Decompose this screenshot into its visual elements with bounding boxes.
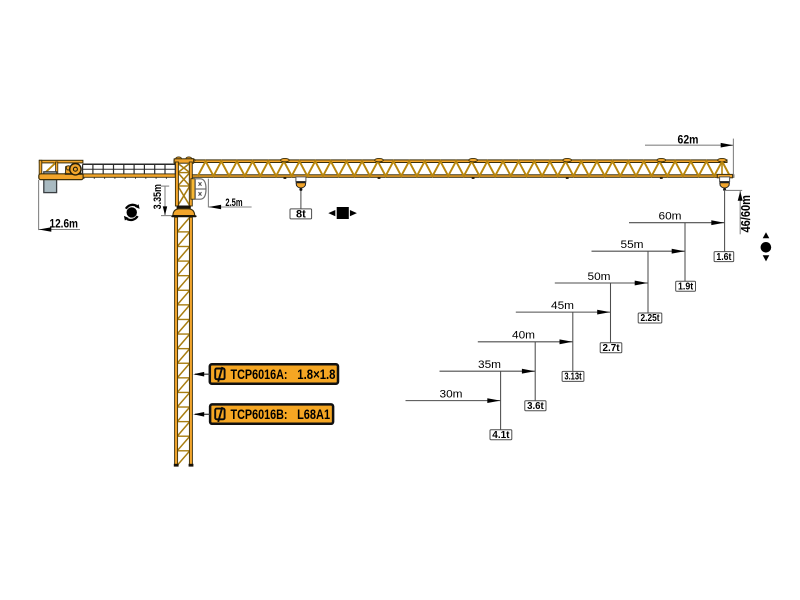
svg-text:1.6t: 1.6t: [716, 252, 731, 263]
svg-text:2.25t: 2.25t: [641, 313, 660, 324]
svg-text:8t: 8t: [296, 208, 306, 220]
svg-text:46/60m: 46/60m: [739, 195, 753, 233]
svg-text:60m: 60m: [659, 211, 682, 223]
svg-text:50m: 50m: [588, 271, 611, 283]
svg-text:4.1t: 4.1t: [492, 430, 510, 441]
svg-text:TCP6016A:: TCP6016A:: [231, 367, 288, 382]
svg-text:1.8×1.8: 1.8×1.8: [297, 367, 336, 382]
svg-text:45m: 45m: [551, 300, 574, 312]
svg-text:40m: 40m: [512, 330, 535, 342]
svg-text:L68A1: L68A1: [297, 407, 330, 422]
svg-text:12.6m: 12.6m: [50, 217, 79, 231]
svg-text:3.6t: 3.6t: [527, 401, 544, 412]
svg-text:3.13t: 3.13t: [564, 372, 582, 383]
svg-text:55m: 55m: [621, 239, 644, 251]
svg-text:2.7t: 2.7t: [603, 343, 621, 354]
svg-text:1.9t: 1.9t: [678, 282, 694, 293]
svg-text:62m: 62m: [678, 132, 699, 146]
svg-text:3.35m: 3.35m: [152, 184, 164, 209]
svg-text:TCP6016B:: TCP6016B:: [231, 407, 288, 422]
svg-text:35m: 35m: [478, 359, 501, 371]
svg-text:2.5m: 2.5m: [225, 197, 242, 209]
svg-text:30m: 30m: [440, 388, 463, 400]
